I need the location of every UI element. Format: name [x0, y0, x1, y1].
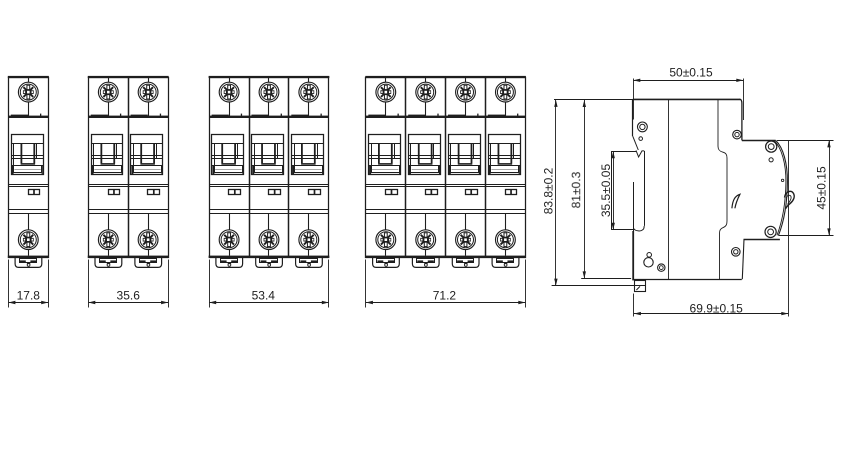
svg-text:81±0.3: 81±0.3: [569, 171, 583, 208]
svg-text:71.2: 71.2: [433, 288, 457, 302]
svg-text:35.6: 35.6: [117, 288, 141, 302]
svg-text:17.8: 17.8: [17, 288, 41, 302]
svg-text:35.5±0.05: 35.5±0.05: [599, 164, 613, 218]
svg-text:69.9±0.15: 69.9±0.15: [690, 302, 744, 316]
svg-text:53.4: 53.4: [252, 288, 276, 302]
svg-text:50±0.15: 50±0.15: [669, 65, 713, 79]
svg-text:45±0.15: 45±0.15: [815, 166, 829, 210]
svg-text:83.8±0.2: 83.8±0.2: [542, 167, 556, 214]
